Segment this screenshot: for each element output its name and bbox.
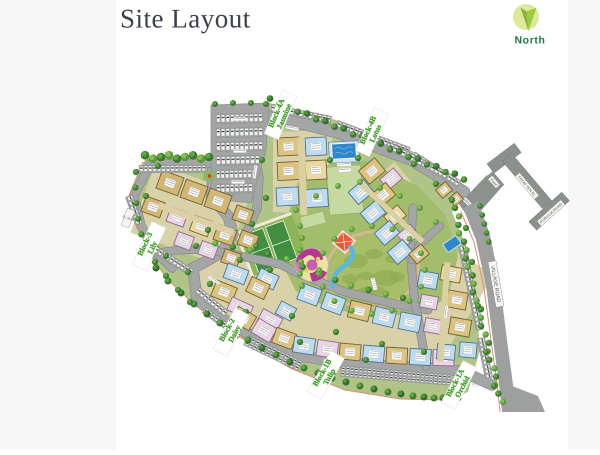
svg-text:North: North — [515, 35, 546, 47]
svg-text:Site Layout: Site Layout — [120, 4, 251, 34]
